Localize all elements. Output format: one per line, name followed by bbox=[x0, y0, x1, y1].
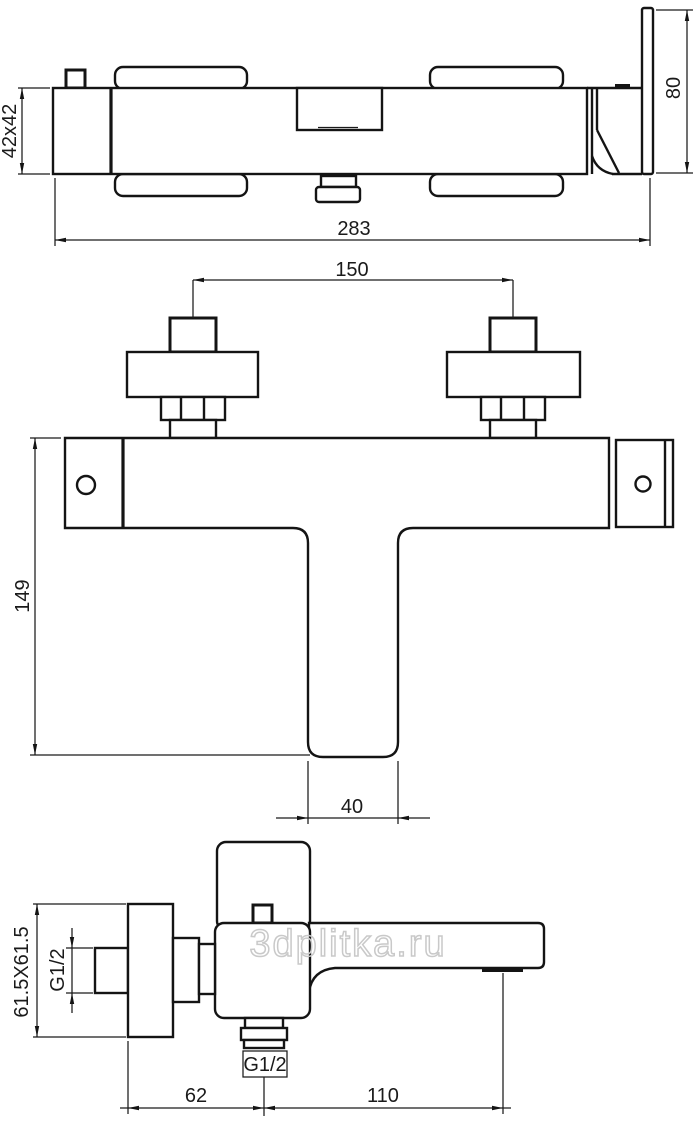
escutcheon-left-bottom bbox=[115, 174, 247, 196]
faucet-technical-drawing-page: 42x42 283 80 bbox=[0, 0, 700, 1126]
dim-label-80: 80 bbox=[663, 77, 685, 99]
body-and-spout-outline bbox=[65, 438, 609, 757]
outlet-step-1-top-view bbox=[321, 176, 356, 187]
watermark-text: 3dplitka.ru bbox=[249, 923, 446, 965]
dim-label-150: 150 bbox=[335, 259, 368, 281]
connector-a-side-view bbox=[173, 938, 199, 1002]
handle-pivot-arc bbox=[592, 156, 613, 174]
dim-label-outlet-g12: G1/2 bbox=[243, 1054, 286, 1076]
dim-label-149: 149 bbox=[12, 579, 34, 612]
outlet-step-1 bbox=[245, 1018, 283, 1028]
dim-label-110: 110 bbox=[367, 1085, 399, 1107]
dim-label-40: 40 bbox=[341, 796, 363, 818]
nut-left bbox=[161, 397, 225, 420]
faucet-technical-drawing: 42x42 283 80 bbox=[0, 0, 700, 1126]
handle-lever-plate bbox=[642, 8, 653, 174]
inlet-pipe-side-view bbox=[95, 948, 128, 993]
escutcheon-left-top bbox=[115, 67, 247, 89]
diverter-tab-side-view bbox=[253, 905, 272, 923]
dim-label-283: 283 bbox=[337, 218, 370, 240]
nut-right bbox=[481, 397, 545, 420]
dim-label-42x42: 42x42 bbox=[0, 104, 21, 159]
outlet-step-2-top-view bbox=[316, 187, 360, 202]
dim-label-escutcheon-61-5: 61.5X61.5 bbox=[11, 926, 33, 1017]
side-view: 3dplitka.ru G1/2 61.5X61.5 G1/2 62 110 bbox=[11, 842, 544, 1116]
handle-slant-edge bbox=[597, 130, 619, 173]
escutcheon-plate-side-view bbox=[128, 904, 173, 1037]
wall-pipe-left bbox=[170, 318, 216, 352]
outlet-step-3 bbox=[244, 1040, 284, 1048]
cartridge-housing bbox=[297, 88, 382, 130]
dim-label-inlet-g12: G1/2 bbox=[47, 948, 69, 991]
escutcheon-right-top bbox=[430, 67, 563, 89]
connector-right bbox=[490, 420, 536, 438]
dim-label-62: 62 bbox=[185, 1085, 207, 1107]
outlet-step-2 bbox=[241, 1028, 287, 1040]
wall-pipe-right bbox=[490, 318, 536, 352]
escutcheon-front-right bbox=[447, 352, 580, 397]
escutcheon-right-bottom bbox=[430, 174, 563, 196]
front-view: 150 149 40 bbox=[12, 259, 673, 824]
connector-left bbox=[170, 420, 216, 438]
diverter-tab-top-view bbox=[66, 70, 85, 88]
connector-b-side-view bbox=[199, 944, 215, 994]
escutcheon-front-left bbox=[127, 352, 258, 397]
handle-notch bbox=[615, 84, 630, 89]
lever-bottom-ledge bbox=[482, 967, 523, 972]
top-view: 42x42 283 80 bbox=[0, 8, 693, 246]
